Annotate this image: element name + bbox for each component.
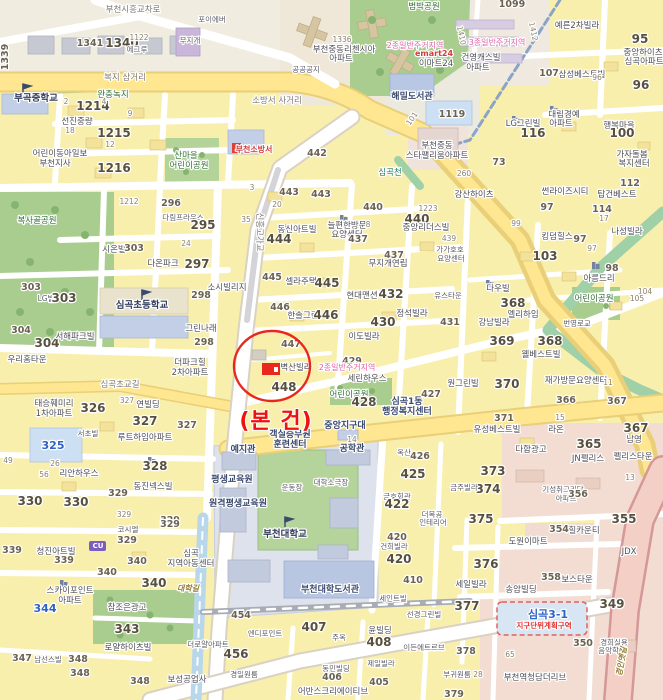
map-label: 건영캐스빌	[461, 52, 500, 63]
map-label: 행정복지센터	[382, 405, 432, 417]
map-label: 원그린빌	[447, 378, 478, 389]
map-label: 3종일반주거지역	[469, 37, 526, 47]
map-label: 리안하우스	[59, 468, 98, 479]
map-label: 탑건베스트	[597, 189, 636, 200]
map-label: 범박공원	[408, 1, 439, 12]
map-label: 374	[475, 482, 500, 496]
map-label: 443	[311, 189, 331, 200]
map-label: 2차아파트	[172, 367, 209, 378]
map-label: 350	[573, 638, 593, 649]
map-label: 1216	[97, 161, 130, 175]
map-label: 이마트24	[419, 58, 453, 69]
map-label: 가가호호	[436, 245, 464, 254]
map-label: 431	[440, 317, 460, 328]
map-label: 379	[444, 689, 464, 700]
map-label: 부귀원룸	[443, 669, 471, 679]
map-label: 348	[70, 668, 90, 679]
map-label: 1119	[439, 109, 465, 120]
map-label: 8	[366, 220, 371, 229]
map-label: 도원이마트	[508, 536, 547, 547]
map-label: 428	[351, 395, 376, 409]
map-label: 심곡1동	[391, 395, 422, 407]
map-label: 98	[605, 263, 619, 274]
map-label: 296	[161, 198, 181, 209]
map-label: 9	[128, 109, 133, 118]
map-label: 367	[623, 421, 648, 435]
map-label: 328	[142, 459, 167, 473]
map-label: 3	[250, 183, 255, 192]
map-label: 강산하이츠	[454, 189, 493, 200]
map-label: 377	[454, 599, 479, 613]
map-label: 35	[241, 215, 251, 224]
map-label: 329	[108, 488, 128, 499]
map-label: 24	[181, 239, 191, 248]
map-label: 73	[492, 157, 505, 168]
map-label: 443	[279, 187, 299, 198]
map-label: 아파트	[466, 62, 490, 73]
map-label: 356	[568, 489, 588, 500]
map-label: 330	[17, 494, 42, 508]
map-label: 옥산	[397, 447, 411, 457]
map-label: 심곡천	[378, 167, 401, 178]
map-label: 368	[537, 334, 562, 348]
map-label: 1336	[332, 35, 351, 44]
map-label: 1212	[119, 197, 138, 206]
map-label: 라온	[548, 425, 564, 435]
map-label: 참조은광고	[107, 602, 146, 613]
map-label: 365	[576, 437, 601, 451]
map-label: 103	[532, 249, 557, 263]
map-label: 18	[65, 126, 75, 135]
map-label: 훈련센터	[273, 438, 306, 450]
map-label: 304	[11, 325, 31, 336]
elementary-school-building	[100, 316, 188, 338]
map-label: 시온빌	[102, 244, 125, 255]
map-label: 444	[266, 232, 291, 246]
map-label: 2종일반주거지역	[387, 40, 444, 50]
map-label: 340	[127, 556, 147, 567]
map-label: 부천대학교	[263, 528, 307, 540]
map-label: 326	[80, 401, 105, 415]
map-label: 인테리어	[419, 517, 447, 527]
map-label: 로얄하이츠빌	[105, 642, 152, 653]
map-label: 그린나래	[185, 323, 216, 334]
map-label: 포이에버	[198, 14, 226, 24]
map-label: 448	[271, 380, 296, 394]
map-label: 웰베스트빌	[521, 349, 560, 360]
map-label: 339	[2, 545, 22, 556]
map-label: 107	[539, 68, 559, 79]
map-label: 중앙리더스빌	[403, 222, 450, 233]
map-label: 354	[549, 524, 569, 535]
map-label: 303	[51, 291, 76, 305]
map-label: 다우빌	[486, 283, 509, 294]
map-label: 26	[50, 459, 60, 468]
map-label: 정석빌라	[396, 308, 427, 319]
map-label: 대학소극장	[314, 477, 349, 487]
map-label: 376	[473, 557, 498, 571]
map-label: 펠리스타운	[613, 451, 652, 462]
map-label: 남선스빌	[34, 655, 62, 664]
map-label: 송암빌딩	[505, 584, 536, 595]
map-label: 1차아파트	[36, 408, 73, 419]
map-label: 12	[105, 140, 115, 149]
map-label: 심곡초교길	[100, 379, 139, 390]
map-label: 329	[160, 519, 180, 530]
map-label: 97	[573, 234, 586, 245]
map-label: 대학길	[177, 584, 201, 593]
map-label: 아파트	[58, 595, 82, 606]
map-label: 경일원룸	[230, 669, 258, 679]
map-label: 킹덤힐스	[541, 231, 572, 242]
map-label: 437	[348, 234, 368, 245]
map-label: 327	[120, 396, 135, 405]
map-label: 327	[132, 414, 157, 428]
map-label: 96	[633, 78, 650, 92]
map-label: 432	[378, 287, 403, 301]
map-label: 심곡	[183, 548, 199, 559]
map-label: 공공공지	[292, 65, 320, 74]
map-label: 운동장	[282, 482, 303, 492]
district-overlay-title: 심곡3-1	[528, 607, 568, 621]
map-label: 348	[68, 654, 88, 665]
map-label: 339	[54, 555, 74, 566]
map-label: 2	[64, 97, 69, 106]
map-label: 348	[130, 676, 150, 687]
map-canvas[interactable]: 133913401341부천시흥교차로1122에그루포이에버무지개복지 삼거리부…	[0, 0, 663, 700]
map-label: 112	[620, 178, 640, 189]
map-label: 남영	[626, 434, 642, 445]
map-label: 제일빌라	[367, 659, 395, 668]
map-label: 보스타운	[561, 575, 592, 585]
map-label: 연빌딩	[136, 399, 159, 410]
map-label: 태승훼미리	[34, 398, 73, 409]
map-label: 408	[366, 635, 391, 649]
map-label: 97	[540, 202, 553, 213]
map-label: 복사골공원	[17, 216, 56, 226]
map-label: 무지개	[180, 35, 201, 45]
map-label: 298	[194, 337, 214, 348]
map-label: 303	[21, 282, 41, 293]
map-label: 어린이공원	[169, 160, 208, 171]
map-label: 아파트	[329, 53, 353, 64]
map-label: 99	[511, 219, 521, 228]
map-label: 20	[272, 200, 282, 209]
map-label: 430	[370, 315, 395, 329]
map-label: 우리홈타운	[7, 354, 46, 365]
map-label: 세일빌라	[455, 579, 486, 590]
map-label: 평생교육원	[211, 473, 252, 485]
map-label: 세인트빌	[379, 593, 407, 603]
map-label: 금주빌라	[450, 483, 478, 492]
map-label: 엘리하임	[507, 309, 538, 320]
map-label: CU	[93, 542, 104, 550]
map-label: 445	[262, 272, 282, 283]
map-label: 105	[630, 294, 645, 303]
map-svg: 133913401341부천시흥교차로1122에그루포이에버무지개복지 삼거리부…	[0, 0, 663, 700]
map-label: 327	[177, 420, 197, 431]
map-label: 어반스크리에이티브	[298, 686, 369, 697]
map-label: 1099	[499, 0, 525, 10]
map-label: 14	[347, 435, 357, 444]
map-label: 요양센터	[437, 253, 465, 263]
map-label: 405	[369, 677, 389, 688]
map-label: 부천중동	[421, 140, 452, 151]
map-label: JDX	[621, 547, 637, 557]
map-label: 아름드리	[583, 273, 614, 284]
map-label: emart24	[415, 49, 453, 58]
map-label: 329	[117, 510, 132, 519]
map-label: 439	[442, 234, 457, 243]
map-label: 295	[190, 218, 215, 232]
map-label: 446	[313, 308, 338, 322]
map-label: 378	[456, 646, 476, 657]
map-label: 330	[63, 495, 88, 509]
map-label: 442	[307, 148, 327, 159]
map-label: 2종일반주거지역	[319, 362, 376, 372]
map-label: 유성베스트빌	[474, 424, 521, 435]
map-label: 260	[457, 169, 472, 178]
map-label: 4	[102, 97, 107, 106]
map-label: 445	[314, 276, 339, 290]
map-label: 427	[421, 389, 441, 400]
map-label: 406	[322, 672, 342, 683]
map-label: 355	[611, 512, 636, 526]
map-label: 367	[607, 396, 627, 407]
map-label: 95	[632, 32, 649, 46]
map-label: 97	[587, 244, 597, 253]
map-label: 298	[191, 290, 211, 301]
district-overlay-subtitle: 지구단위계획구역	[516, 620, 571, 630]
map-label: 셀라주택	[285, 276, 316, 287]
map-label: 1215	[97, 126, 130, 140]
map-label: 건희빌라	[380, 541, 408, 551]
map-label: 나성빌라	[611, 226, 642, 237]
map-label: 심곡아파트	[624, 56, 663, 67]
map-label: 에그루	[127, 45, 148, 54]
map-label: 456	[223, 647, 248, 661]
map-label: 116	[520, 126, 545, 140]
map-label: 썬라이즈시티	[542, 186, 589, 197]
map-label: 부천소방서	[236, 144, 273, 154]
map-label: 410	[403, 575, 423, 586]
map-label: 426	[410, 451, 430, 462]
map-label: 297	[184, 257, 209, 271]
map-label: 예른2차빌라	[555, 20, 600, 31]
subject-label: (본 건)	[239, 409, 312, 434]
map-label: 지역아동센터	[168, 558, 215, 569]
map-label: 스타팰리움아파트	[406, 150, 469, 161]
map-label: 422	[384, 497, 409, 511]
map-label: 420	[386, 552, 411, 566]
map-label: 100	[609, 126, 634, 140]
map-label: 서초빌	[78, 429, 99, 438]
map-label: 407	[301, 620, 326, 634]
map-label: 신흥고가교	[254, 212, 265, 251]
map-label: 무지개연립	[368, 258, 407, 269]
map-label: 더파크힐	[174, 357, 205, 368]
map-label: 유스타운	[434, 291, 462, 300]
map-label: 28	[473, 670, 483, 679]
map-label: 65	[505, 650, 515, 659]
map-label: 440	[363, 202, 383, 213]
map-label: 1339	[0, 44, 11, 70]
map-label: 복지센터	[618, 158, 649, 169]
map-label: 소시빌리지	[207, 282, 246, 293]
map-label: 강남빌라	[478, 317, 509, 328]
map-label: 56	[39, 470, 49, 479]
map-label: 벽산빌라	[280, 362, 311, 373]
map-label: 358	[541, 572, 561, 583]
map-label: JN펠리스	[571, 453, 605, 464]
map-label: 소방서 사거리	[252, 95, 302, 106]
map-label: 325	[42, 439, 65, 452]
map-label: 이도빌라	[348, 331, 379, 342]
map-label: 힐카운티	[568, 525, 599, 536]
map-label: 코시엘	[118, 525, 139, 534]
map-label: 복지 삼거리	[104, 72, 146, 83]
map-label: 엔디포인트	[248, 628, 283, 638]
map-label: 343	[114, 622, 139, 636]
map-label: 보성공업사	[167, 675, 206, 685]
map-label: 산마을	[174, 150, 198, 161]
map-label: 375	[468, 512, 493, 526]
map-label: 1341	[77, 38, 103, 49]
map-label: 부천지사	[39, 158, 70, 169]
map-label: 주옥	[332, 633, 346, 642]
map-label: 어린이공원	[574, 293, 613, 304]
map-label: 344	[34, 602, 57, 615]
map-label: 번영로교	[563, 318, 591, 328]
map-label: 425	[400, 467, 425, 481]
map-label: 13	[625, 473, 635, 482]
map-label: 370	[494, 377, 519, 391]
map-label: 366	[556, 395, 576, 406]
map-label: 17	[599, 214, 609, 223]
map-label: 369	[489, 334, 514, 348]
map-label: 49	[3, 456, 13, 465]
map-label: 373	[480, 464, 505, 478]
map-label: 340	[141, 576, 166, 590]
map-label: 부천역청담더리브	[504, 672, 567, 683]
map-label: 다함광고	[515, 444, 546, 455]
map-label: 서해파크빌	[55, 331, 94, 342]
map-label: 스카이포인트	[47, 585, 94, 596]
map-label: 어린이동아일보	[33, 148, 88, 159]
map-label: 아파트	[549, 118, 573, 129]
map-label: 349	[599, 597, 624, 611]
map-label: 중앙지구대	[324, 419, 365, 431]
map-label: 329	[117, 535, 137, 546]
map-label: 368	[500, 296, 525, 310]
map-label: 부곡중학교	[14, 92, 58, 104]
map-label: 15	[555, 413, 565, 422]
map-label: 심곡초등학교	[116, 299, 169, 311]
map-label: 해밀도서관	[391, 90, 433, 102]
map-label: 예지관	[231, 443, 257, 455]
map-label: 96	[592, 73, 602, 82]
map-label: 동진넥스빌	[133, 481, 172, 492]
map-label: 선경그린빌	[407, 609, 442, 619]
map-label: 현대맨션	[346, 290, 377, 301]
map-label: 340	[97, 567, 117, 578]
map-label: 303	[124, 243, 144, 254]
map-label: 11	[603, 378, 613, 387]
map-label: 371	[494, 413, 514, 424]
map-label: 347	[12, 653, 32, 664]
map-label: 재가방문요양센터	[545, 375, 608, 386]
map-label: 1122	[129, 33, 148, 42]
map-label: 다온파크	[147, 259, 178, 269]
map-label: 부천대학도서관	[301, 583, 360, 595]
map-label: 루트하임아파트	[118, 432, 173, 443]
map-label: 세린하우스	[347, 373, 386, 384]
map-label: 454	[231, 610, 251, 621]
map-label: 이든에트르브	[403, 642, 444, 652]
map-label: 1223	[418, 204, 437, 213]
map-label: 부천시흥교차로	[106, 4, 161, 15]
map-label: 원격평생교육원	[209, 497, 267, 509]
